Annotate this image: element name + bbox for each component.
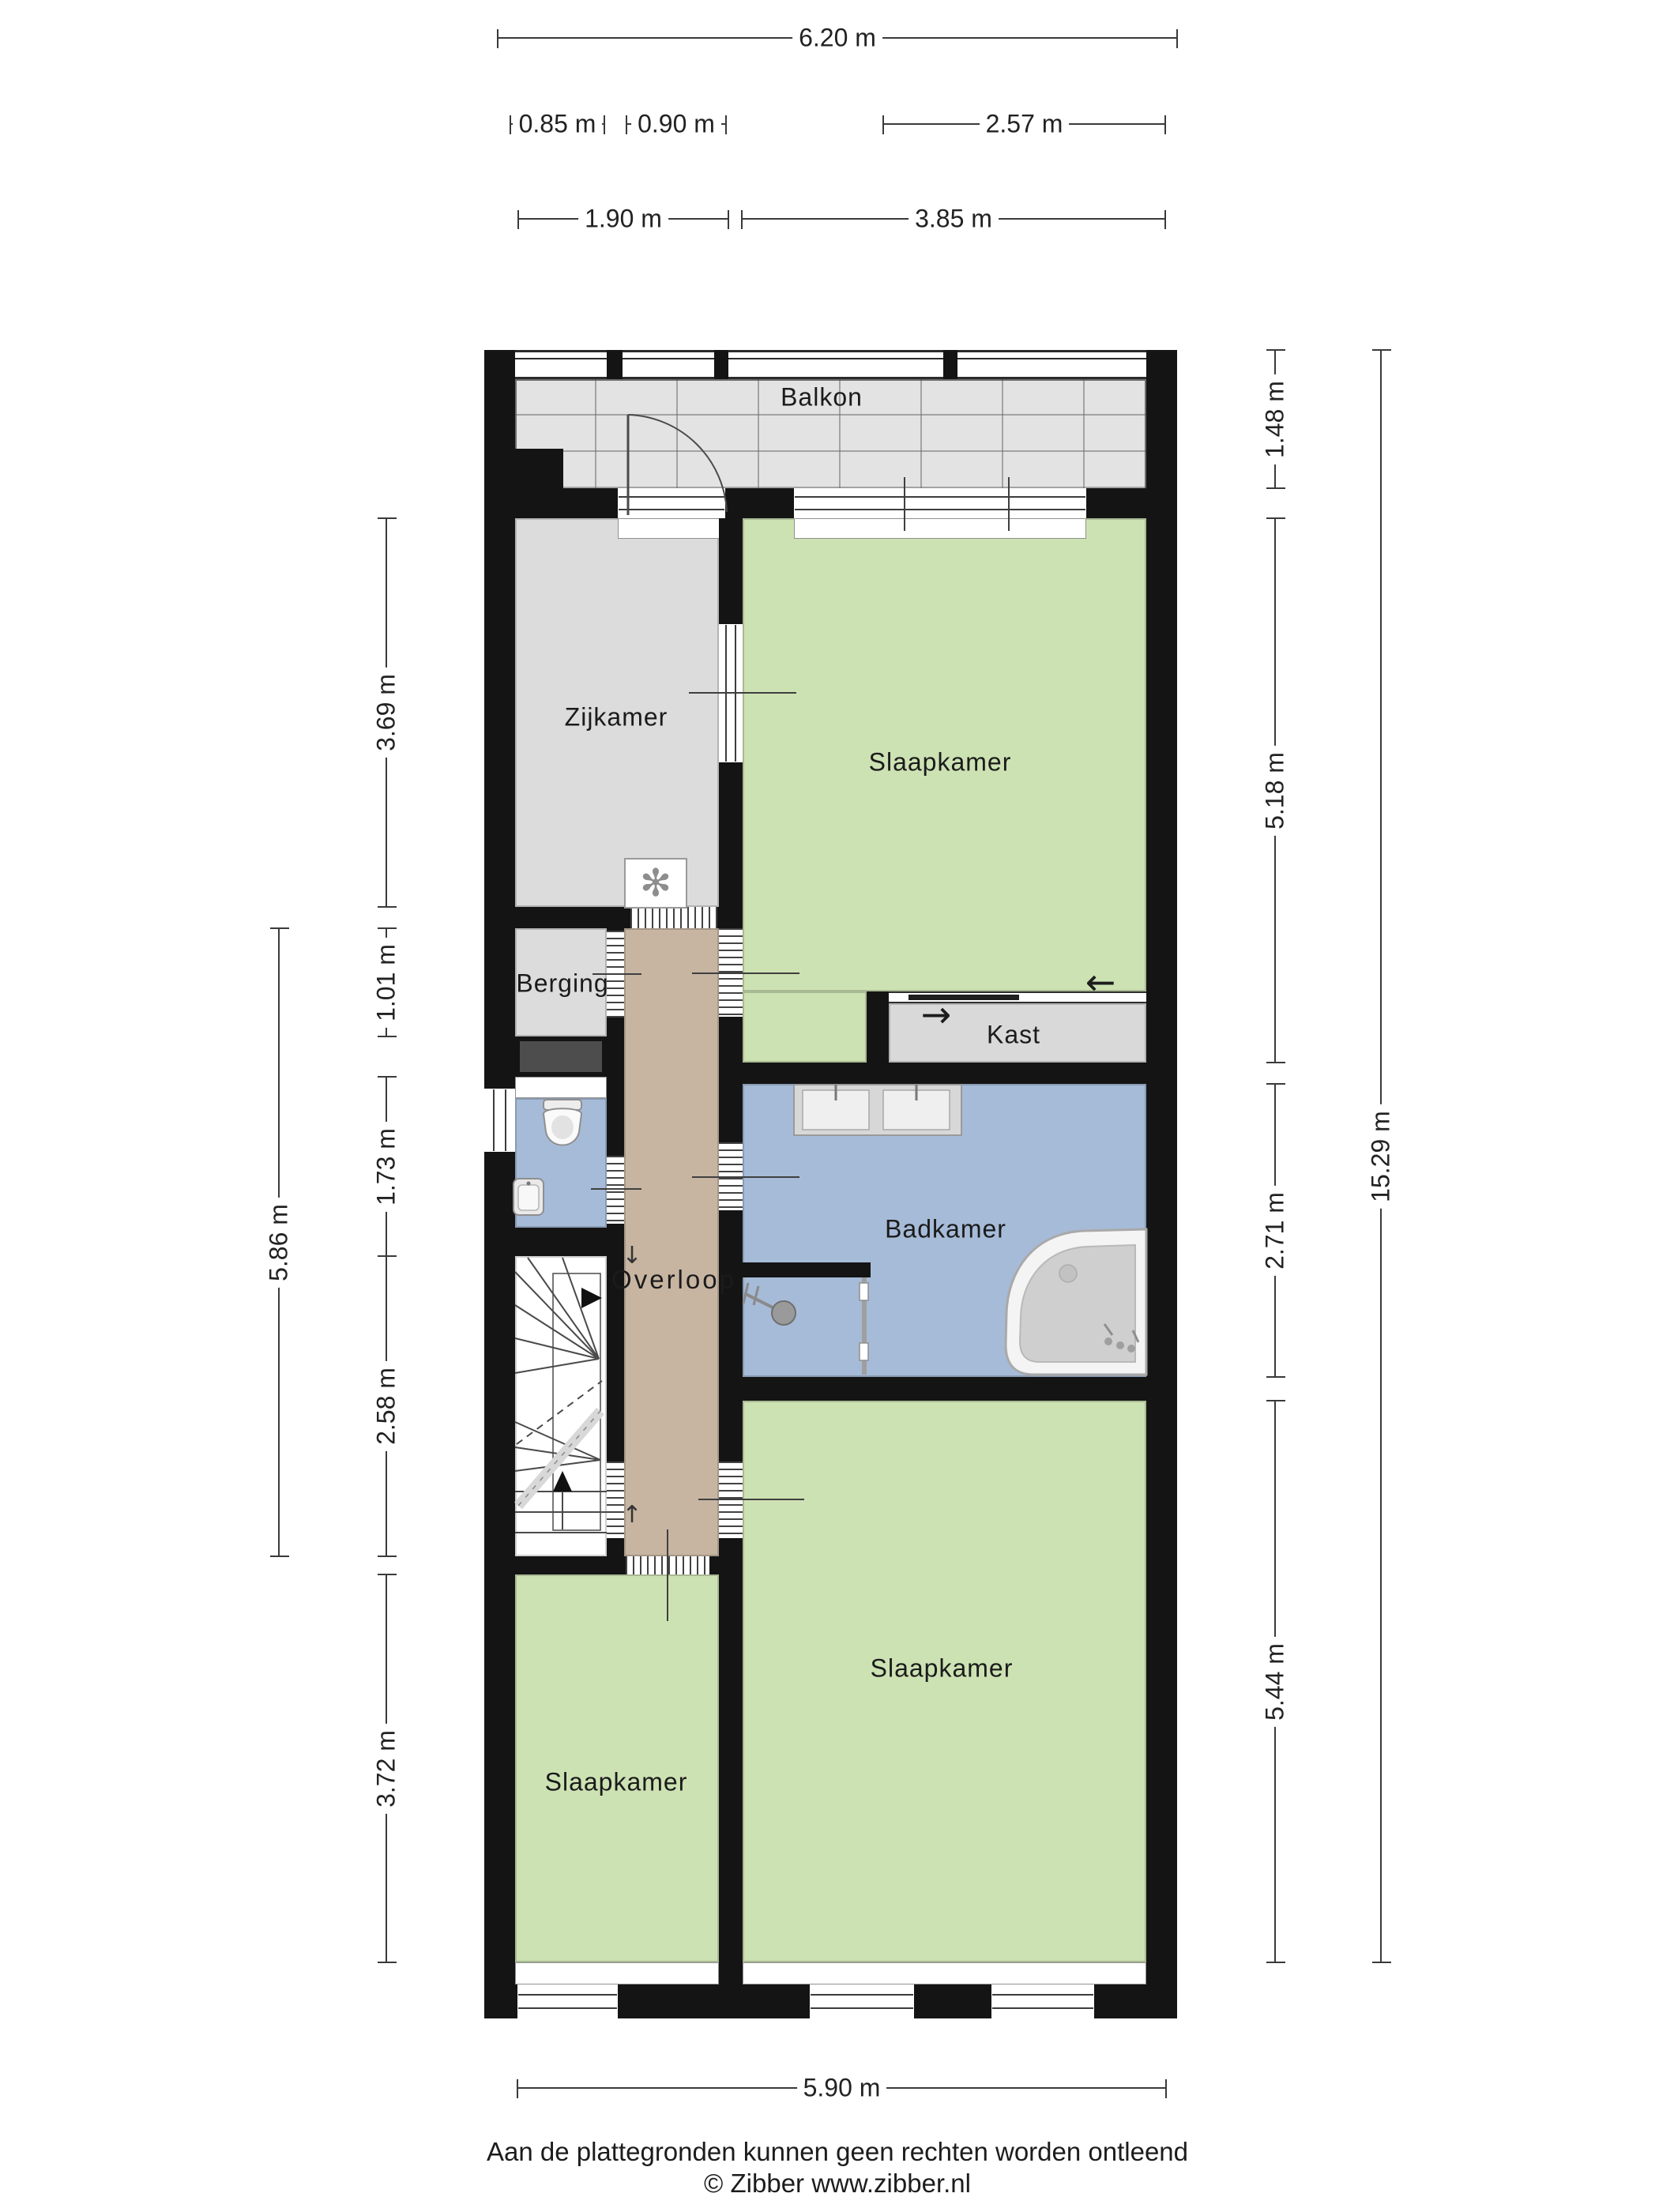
wall-kast-left: [867, 991, 889, 1063]
dimension-right-total: 15.29 m: [1380, 350, 1382, 1962]
room-label-slaapkamer-top: Slaapkamer: [869, 748, 1012, 777]
room-label-slaapkamer-rechts: Slaapkamer: [871, 1654, 1014, 1683]
door-berging: [607, 931, 624, 1018]
room-label-overloop: Overloop: [611, 1265, 736, 1295]
window-bottom-left: [517, 1984, 618, 2018]
dimension-top-385: 3.85 m: [742, 218, 1165, 220]
door-toilet: [607, 1156, 624, 1224]
door-slaapkamer-rechts: [719, 1461, 743, 1538]
railing-post: [943, 350, 957, 379]
room-label-balkon: Balkon: [781, 383, 863, 412]
dimension-right-slaapkamer-bottom: 5.44 m: [1274, 1401, 1276, 1962]
room-floor-toilet: [515, 1098, 607, 1228]
room-label-badkamer: Badkamer: [885, 1215, 1006, 1244]
dimension-right-badkamer: 2.71 m: [1274, 1084, 1276, 1377]
footer-disclaimer: Aan de plattegronden kunnen geen rechten…: [487, 2137, 1188, 2167]
footer-copyright: © Zibber www.zibber.nl: [704, 2169, 971, 2199]
room-label-kast: Kast: [987, 1021, 1040, 1050]
dimension-left-zijkamer: 3.69 m: [386, 518, 387, 907]
dimension-left-outer: 5.86 m: [278, 928, 280, 1556]
wall-segment: [484, 449, 563, 494]
dimension-left-slaapkamer: 3.72 m: [386, 1574, 387, 1962]
toilet-recess: [515, 1077, 607, 1098]
dimension-top-257: 2.57 m: [883, 123, 1165, 125]
balcony-door-landing: [618, 518, 725, 539]
window-sill-left: [515, 1962, 719, 1984]
room-label-zijkamer: Zijkamer: [565, 703, 668, 732]
dimension-top-090: 0.90 m: [626, 123, 726, 125]
fan-glyph: ✻: [640, 861, 671, 905]
kast-arrow-left-icon: ←: [1085, 964, 1116, 1000]
railing-post: [714, 350, 728, 379]
kast-arrow-right-icon: →: [921, 996, 952, 1033]
door-badkamer: [719, 1142, 743, 1210]
dimension-right-slaapkamer-top: 5.18 m: [1274, 518, 1276, 1063]
dimension-bottom-total: 5.90 m: [517, 2087, 1166, 2089]
door-zijkamer-overloop: [630, 907, 717, 928]
dimension-top-total: 6.20 m: [498, 37, 1177, 39]
dimension-left-berging: 1.01 m: [386, 928, 387, 1036]
railing-post: [607, 350, 623, 379]
room-label-slaapkamer-links: Slaapkamer: [545, 1768, 688, 1797]
window-slaapkamer-top: [794, 488, 1086, 518]
dimension-left-toilet: 1.73 m: [386, 1077, 387, 1256]
duct-shaft: [515, 1036, 607, 1077]
window-recess-top: [794, 518, 1086, 539]
balcony-door-threshold: [618, 488, 725, 518]
wall-badkamer-top: [743, 1063, 1146, 1084]
room-floor-slaapkamer-top-strip: [743, 991, 867, 1063]
dimension-top-085: 0.85 m: [510, 123, 604, 125]
window-bottom-middle: [810, 1984, 914, 2018]
door-slaapkamer-top: [719, 928, 743, 1017]
overloop-arrow-up-icon: ↑: [622, 1503, 641, 1527]
room-label-berging: Berging: [516, 969, 608, 999]
room-floor-stairwell: [515, 1256, 607, 1556]
wall-shower-stub: [743, 1262, 871, 1277]
fan-icon: ✻: [624, 858, 687, 908]
dimension-top-190: 1.90 m: [518, 218, 728, 220]
dimension-right-balkon: 1.48 m: [1274, 350, 1276, 488]
floorplan: ✻ ← → ↓ ↑ Balkon Zijkamer Slaapkamer Ber…: [0, 0, 1659, 2212]
window-internal-zijkamer: [719, 624, 743, 762]
window-bottom-right: [991, 1984, 1094, 2018]
window-sill-right: [743, 1962, 1146, 1984]
door-slaapkamer-links: [626, 1556, 709, 1574]
wall-toilet-bottom: [484, 1228, 624, 1256]
wall-badkamer-bottom: [743, 1377, 1146, 1401]
wall-right-exterior: [1146, 350, 1177, 2018]
dimension-left-stairs: 2.58 m: [386, 1256, 387, 1556]
window-toilet: [484, 1089, 515, 1152]
wall-left-exterior: [484, 518, 515, 2018]
